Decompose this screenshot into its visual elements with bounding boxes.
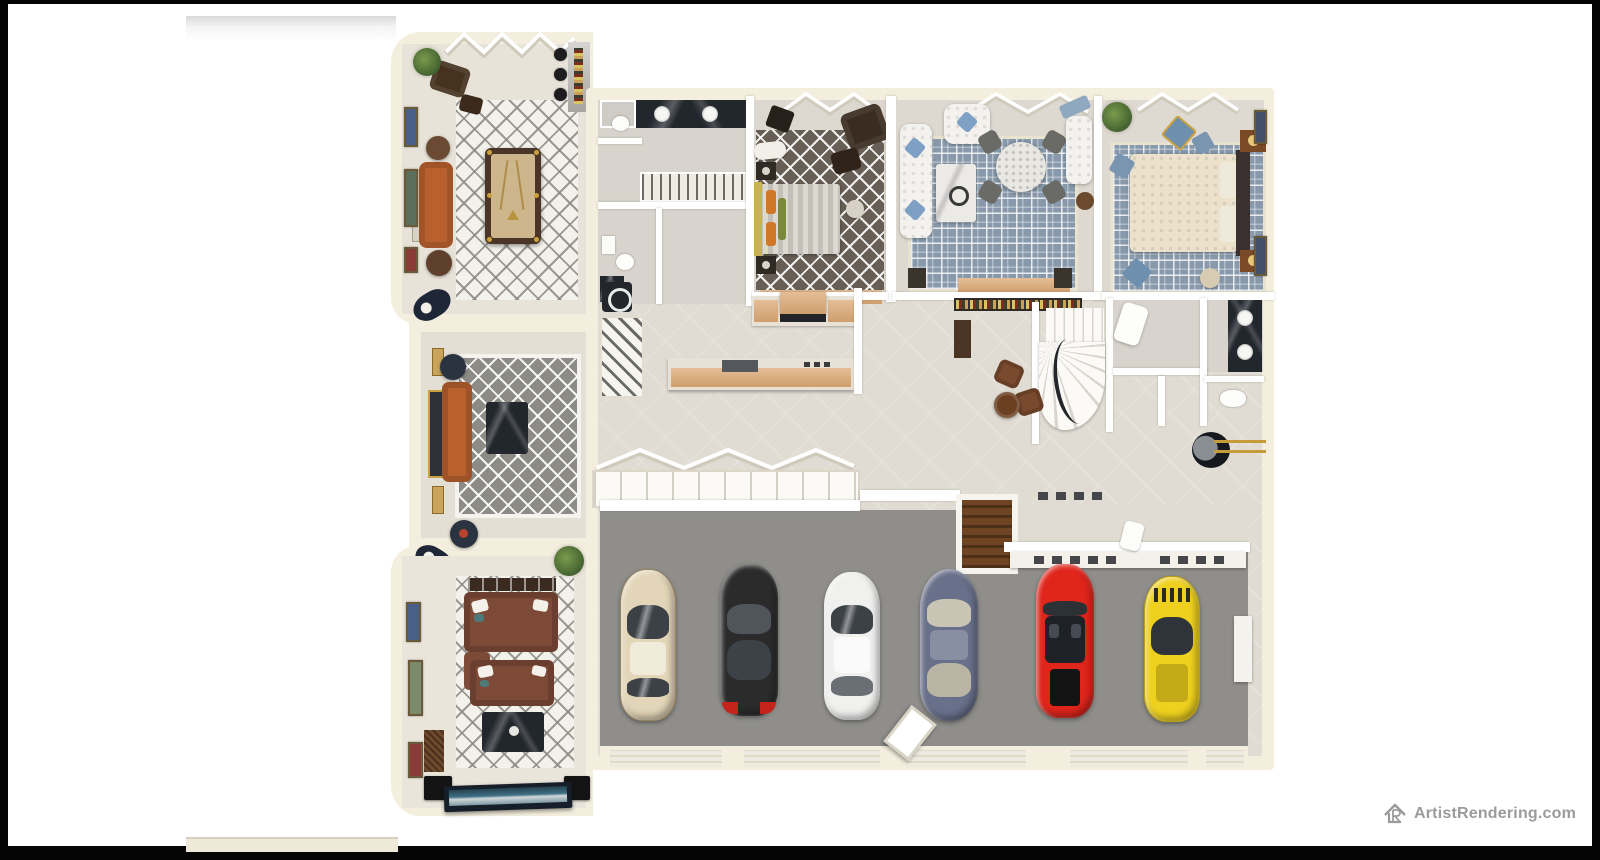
dark-headboard [1236,150,1250,256]
wall [1102,292,1274,300]
round-side-table [450,520,478,548]
car-red-convertible [1036,564,1094,718]
watermark: ArtistRendering.com [1382,802,1576,826]
open-casement-windows [1136,92,1240,116]
car-yellow-sports [1144,576,1200,722]
blue-pillow [904,137,927,160]
white-storage-cabinet [1234,616,1252,682]
wall-niche [432,486,444,514]
range [780,314,826,322]
wall [1094,96,1102,300]
lamp [762,167,770,175]
sitting-room-rug [908,136,1078,292]
woven-panel [424,730,444,772]
orange-chesterfield-sofa [442,382,472,482]
garage-door [1206,750,1244,767]
orange-sofa [419,162,453,248]
bar-stool [554,88,567,101]
wall-art [406,602,421,642]
toilet [612,116,629,131]
nightstand [756,256,776,274]
patio-slab-top [186,26,396,42]
pouf [846,200,864,218]
stairwell-opening [956,494,1018,574]
decor-ball [419,300,434,315]
wine-bottle-rack [574,48,583,104]
pillow [1220,162,1236,198]
flower-decor [459,529,468,538]
wall [860,490,960,501]
kitchen-island [668,358,854,390]
lamp [762,261,770,269]
dark-cabinet [1054,268,1072,288]
theater-sofa-row-2 [470,660,554,706]
small-sink [602,236,615,254]
house-logo-icon [1382,802,1408,826]
blue-pillow [904,199,927,222]
marble-coffee-table [936,164,976,222]
bed [758,184,840,254]
white-pillow [532,599,549,612]
wall-art [404,169,418,227]
white-chaise [1066,116,1092,184]
garage-door [744,750,880,767]
table-decor [509,726,519,736]
orange-pillow [766,190,776,214]
white-pillow [531,665,547,678]
gold-pipe [1214,440,1266,443]
patio-edge-top [186,16,396,26]
sink [702,106,718,122]
wall [598,202,748,209]
gold-pipe [1214,450,1266,453]
orange-pillow [766,222,776,246]
teal-pillow [474,614,484,622]
pool-pocket [534,193,539,198]
pool-pocket [487,237,492,242]
wall [1032,302,1039,444]
garage-door [610,750,722,767]
pool-pocket [487,150,492,155]
pantry-shelving [600,316,644,398]
pool-table [485,148,541,244]
round-side-table [426,136,450,160]
wall [854,288,862,394]
double-vanity [636,100,746,128]
bar-stool [554,68,567,81]
wall [1113,368,1207,375]
knobs [804,362,832,367]
blue-pillow [956,111,979,134]
dark-cabinet [908,268,926,288]
tools [1160,556,1230,564]
white-pillow [477,665,494,679]
bar-cabinet [954,320,971,358]
island-cabinets [671,368,851,387]
sink [1237,310,1253,326]
pouf [1200,268,1220,288]
pool-pocket [534,150,539,155]
wall [656,208,662,304]
wall-art [408,660,423,716]
plant [1102,102,1132,132]
dark-marble-coffee-table [486,402,528,454]
round-side-table [440,354,466,380]
shoe-row [1038,492,1110,500]
wall-art [404,107,418,147]
bay-windows-zigzag [594,448,856,472]
toilet [1220,390,1246,407]
plant [554,546,584,576]
projection-screen [444,782,573,812]
wall [886,96,896,302]
car-white-sedan [824,572,880,720]
wall [1204,376,1264,382]
table-decor [949,186,969,206]
wall-art [404,247,418,273]
wall [1200,298,1207,426]
plant [413,48,441,76]
wall-art [408,742,423,778]
theater-sofa-row-1 [464,592,558,652]
garage-door [906,750,1026,767]
washer [602,282,632,312]
tools [1034,556,1124,564]
sink [654,106,670,122]
garage-door [1070,750,1188,767]
white-pillow [471,598,489,614]
cabinet [828,300,854,322]
sink [1237,344,1253,360]
car-champagne-sedan [620,569,676,721]
pool-pocket [487,193,492,198]
dark-double-vanity [1228,300,1262,372]
wardrobe-hangers [640,172,748,202]
rendered-floor-plan-image: ArtistRendering.com [0,0,1600,860]
garage-top-wall [600,500,860,511]
kitchen-wall-counter [752,296,856,326]
patio-slab-bottom [186,837,398,852]
green-pillow [778,198,786,240]
teal-pillow [480,680,489,687]
wall [1158,376,1165,426]
nightstand [756,162,776,180]
wall [746,96,754,306]
round-side-table [426,250,452,276]
car-black-sports [720,564,778,716]
media-console [468,578,556,591]
cream-tufted-bed [1130,154,1238,252]
wall-art [1254,236,1267,276]
headboard-trim [754,182,762,256]
wall-art [1254,110,1267,144]
white-tufted-sofa [900,124,932,238]
range-hood-cabinet [780,292,826,314]
island-sink [722,360,758,372]
wall [1106,298,1113,432]
round-dining-table [996,142,1046,192]
black-marble-table [482,712,544,752]
round-wood-table [994,392,1020,418]
toilet [616,254,634,270]
side-table [1076,192,1094,210]
car-slate-blue-classic [920,569,978,721]
cabinet [754,300,778,322]
washer-door [608,288,632,312]
pool-pocket [534,237,539,242]
screen-image [449,786,567,806]
watermark-text: ArtistRendering.com [1414,805,1576,823]
wall [598,138,642,144]
pillow [1220,206,1236,242]
bar-stool [554,48,567,61]
pool-table-felt [491,154,535,238]
